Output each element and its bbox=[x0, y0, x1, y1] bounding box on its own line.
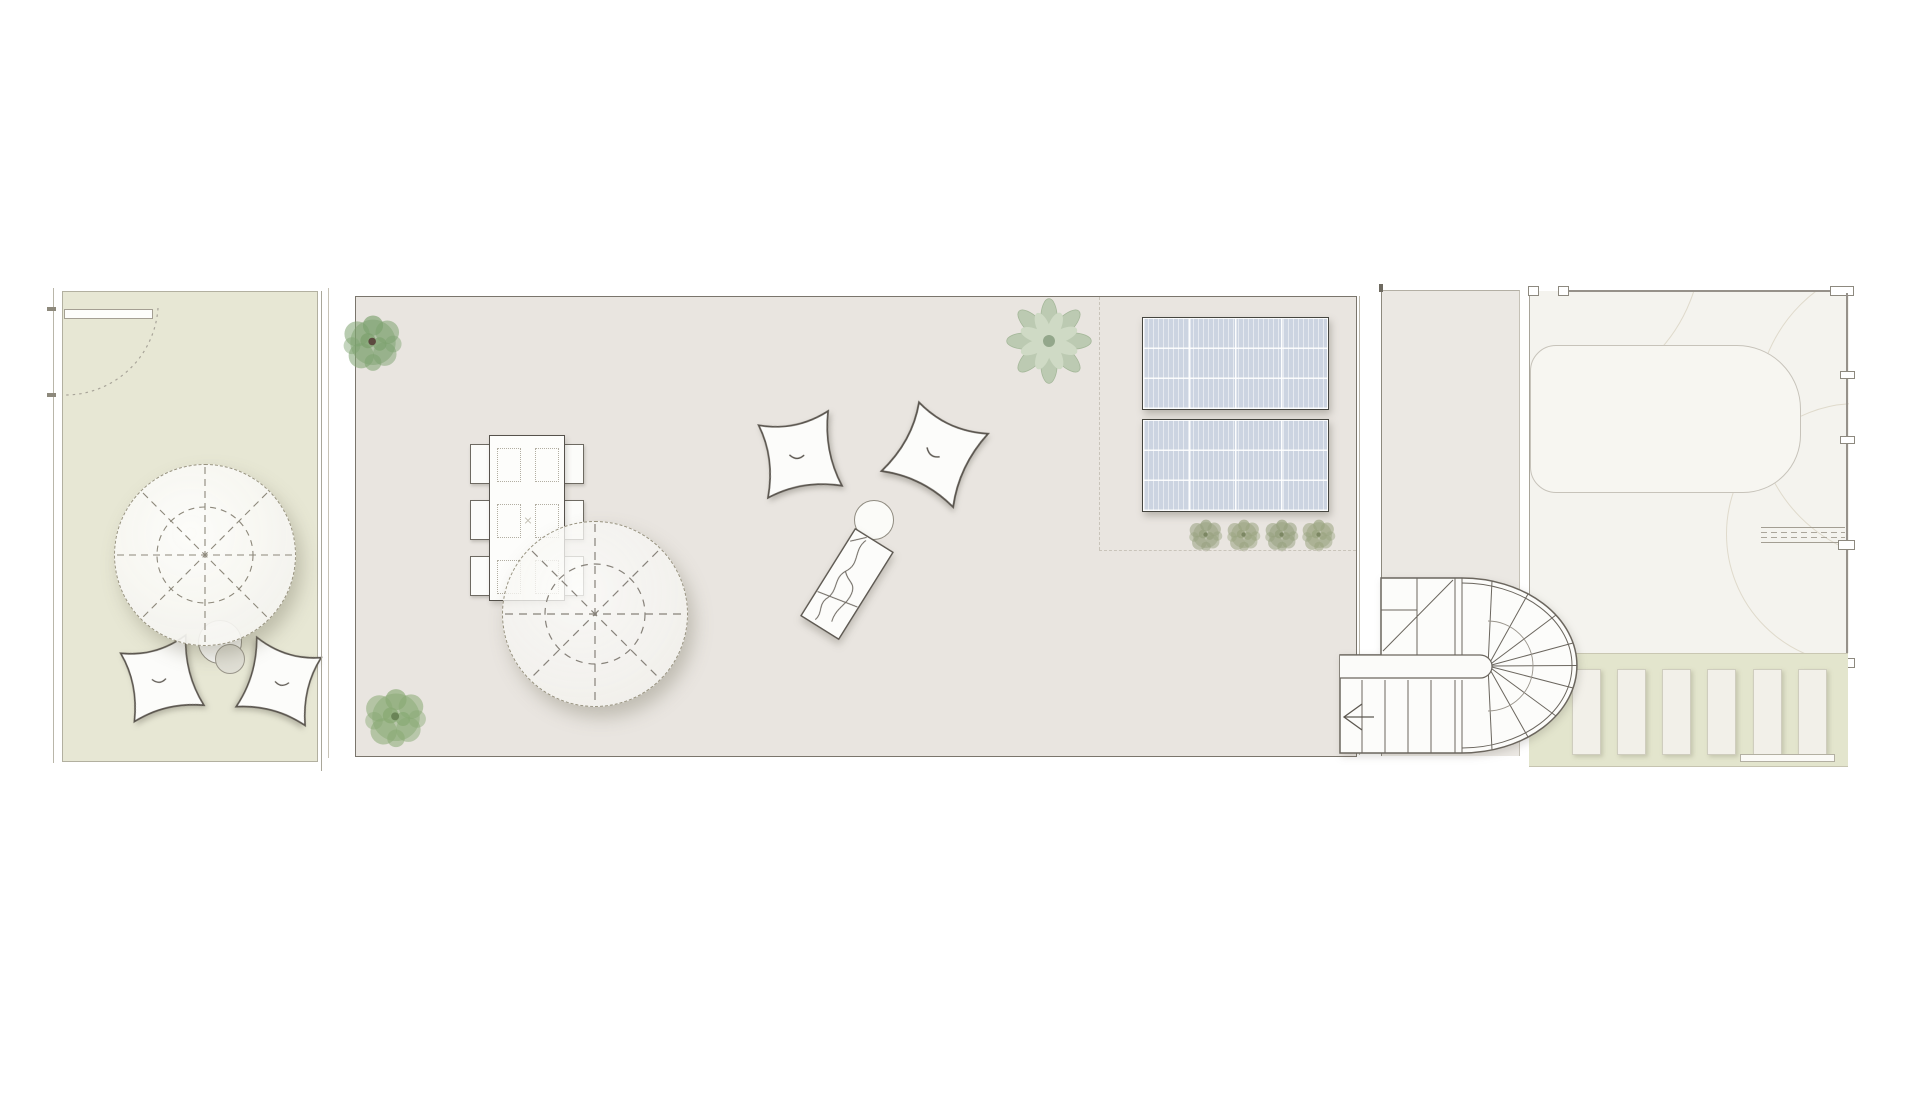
window-jamb bbox=[1840, 436, 1855, 444]
rounded-skylight bbox=[1530, 345, 1801, 493]
terrace-parasol bbox=[502, 521, 688, 707]
hedge-shrub bbox=[1295, 512, 1343, 560]
sun-lounger bbox=[800, 528, 894, 641]
window-jamb bbox=[1840, 371, 1855, 379]
party-wall-line bbox=[321, 291, 322, 771]
parasol-ribs bbox=[503, 522, 687, 706]
main-roof-terrace bbox=[355, 296, 1357, 757]
paving-slab bbox=[1617, 669, 1646, 755]
butterfly-chair bbox=[232, 632, 329, 729]
window-jamb bbox=[1838, 540, 1855, 550]
potted-succulent bbox=[1003, 295, 1095, 387]
ventilation-grille bbox=[1761, 527, 1845, 543]
zone-boundary-line bbox=[1099, 550, 1356, 552]
paving-slab bbox=[1662, 669, 1691, 755]
butterfly-chair bbox=[751, 407, 846, 502]
zone-boundary-line bbox=[1099, 297, 1101, 550]
floorplan-canvas bbox=[0, 0, 1920, 1103]
party-wall-line bbox=[328, 288, 329, 758]
left-garden-terrace bbox=[62, 291, 318, 762]
corner-shrub bbox=[331, 302, 415, 386]
site-boundary-line bbox=[53, 288, 54, 763]
door-jamb bbox=[1558, 286, 1569, 296]
solar-panel bbox=[1142, 317, 1329, 410]
corner-shrub bbox=[352, 675, 440, 763]
wall-end-tick bbox=[1379, 284, 1383, 292]
accent-table bbox=[215, 644, 245, 674]
threshold-strip bbox=[1740, 754, 1835, 762]
wall-tick-mark bbox=[47, 307, 56, 311]
paving-slab bbox=[1753, 669, 1782, 755]
solar-panel bbox=[1142, 419, 1329, 512]
door-jamb bbox=[1528, 286, 1539, 296]
wall-tick-mark bbox=[47, 393, 56, 397]
paving-slab bbox=[1798, 669, 1827, 755]
parasol-ribs bbox=[115, 465, 295, 645]
switchback-staircase bbox=[1325, 568, 1590, 763]
dining-chair bbox=[562, 444, 584, 484]
garden-parasol bbox=[114, 464, 296, 646]
paving-slab bbox=[1707, 669, 1736, 755]
placemat bbox=[497, 448, 521, 482]
door-swing-arc bbox=[58, 300, 163, 400]
wall-jamb bbox=[1830, 286, 1854, 296]
butterfly-chair bbox=[872, 389, 998, 515]
placemat bbox=[535, 448, 559, 482]
room-right-wall bbox=[1846, 293, 1848, 665]
room-top-wall bbox=[1568, 290, 1830, 292]
